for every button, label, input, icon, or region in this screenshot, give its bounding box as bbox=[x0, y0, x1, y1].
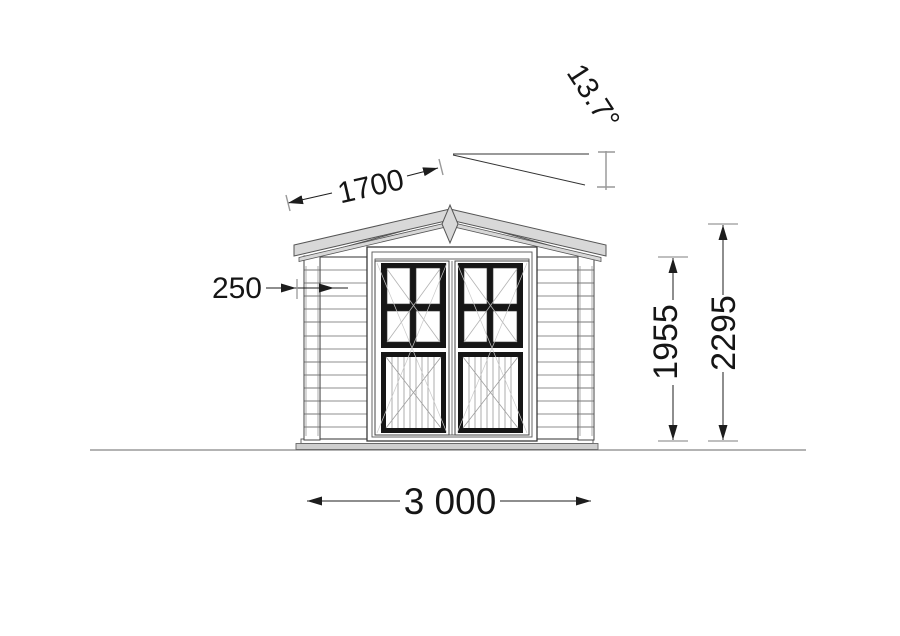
elevation-drawing: 1700 13.7° 250 1955 bbox=[0, 0, 900, 636]
door-window-left bbox=[381, 263, 446, 348]
door-panel-left bbox=[381, 352, 446, 433]
dim-roof-angle: 13.7° bbox=[453, 58, 626, 190]
dim-wall-height-label: 1955 bbox=[647, 304, 685, 380]
dim-overall-width: 3 000 bbox=[307, 481, 591, 522]
dim-roof-slope: 1700 bbox=[286, 159, 443, 211]
dim-overall-width-label: 3 000 bbox=[404, 481, 497, 522]
dim-wall-height: 1955 bbox=[647, 257, 688, 441]
door-window-right bbox=[458, 263, 523, 348]
double-door bbox=[367, 247, 537, 441]
dim-ridge-height-label: 2295 bbox=[705, 295, 743, 371]
elevation-canvas: 1700 13.7° 250 1955 bbox=[0, 0, 900, 636]
left-corner-logs bbox=[304, 256, 320, 440]
right-corner-logs bbox=[578, 256, 594, 440]
dim-roof-angle-label: 13.7° bbox=[560, 58, 626, 135]
building bbox=[90, 205, 806, 450]
dim-corner-offset-label: 250 bbox=[212, 272, 262, 305]
foundation-base bbox=[296, 444, 598, 450]
dim-ridge-height: 2295 bbox=[705, 224, 743, 441]
door-panel-right bbox=[458, 352, 523, 433]
dim-roof-slope-label: 1700 bbox=[335, 163, 407, 210]
